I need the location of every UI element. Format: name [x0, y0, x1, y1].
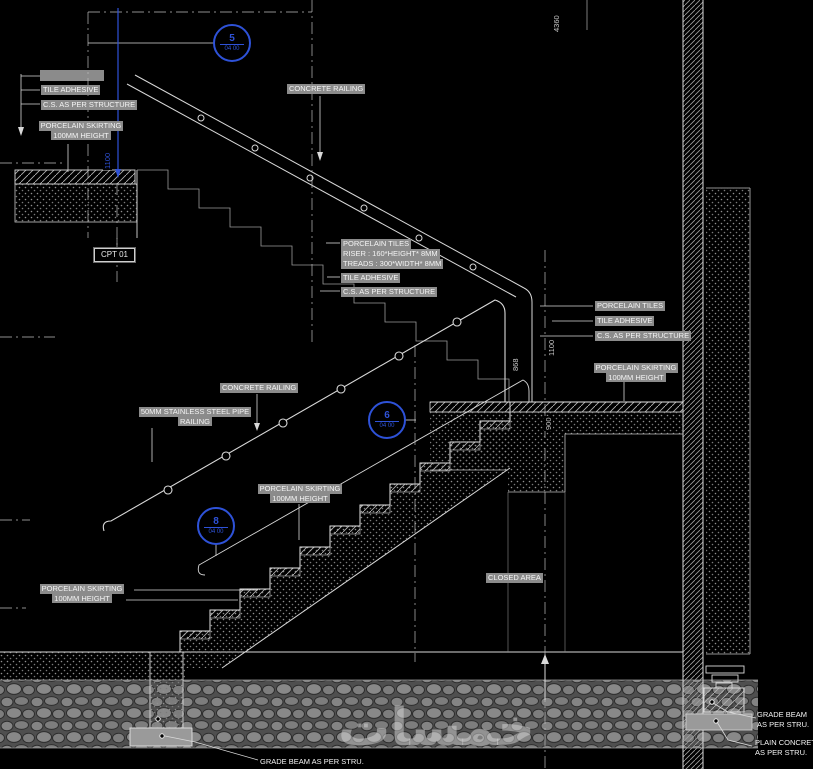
cad-stair-section-drawing: TILE ADHESIVE C.S. AS PER STRUCTURE PORC…	[0, 0, 813, 769]
label-porcelain-skirting-right: PORCELAIN SKIRTING100MM HEIGHT	[586, 363, 686, 382]
label-grade-beam-bottom: GRADE BEAM AS PER STRU.	[260, 757, 364, 767]
label-porcelain-tiles-right: PORCELAIN TILES	[595, 301, 665, 311]
upper-flight-outline	[137, 170, 509, 402]
label-porcelain-tiles-mid: PORCELAIN TILES	[341, 239, 411, 249]
label-pipe-railing: 50MM STAINLESS STEEL PIPERAILING	[120, 407, 270, 426]
label-concrete-railing-top: CONCRETE RAILING	[287, 84, 365, 94]
label-porcelain-skirting-bottomleft: PORCELAIN SKIRTING100MM HEIGHT	[30, 584, 134, 603]
grade-beam-right	[704, 688, 744, 712]
cpt-tag: CPT 01	[94, 248, 135, 262]
label-closed-area: CLOSED AREA	[486, 573, 543, 583]
dim-rail-height: 868	[511, 357, 520, 372]
mid-landing	[430, 402, 683, 652]
label-tile-adhesive-right: TILE ADHESIVE	[595, 316, 654, 326]
plain-concrete-strip	[686, 714, 752, 730]
label-porcelain-skirting-topleft: PORCELAIN SKIRTING100MM HEIGHT	[30, 121, 132, 140]
label-tile-adhesive-mid: TILE ADHESIVE	[341, 273, 400, 283]
dim-landing-depth: 900	[544, 416, 553, 431]
label-concrete-railing-mid: CONCRETE RAILING	[220, 383, 298, 393]
label-plain-concrete: PLAIN CONCRETEAS PER STRU.	[755, 738, 813, 757]
detail-callout-8: 8 04 00	[197, 507, 235, 545]
label-grade-beam-right: GRADE BEAMAS PER STRU.	[757, 710, 809, 729]
right-wall-section	[683, 0, 750, 769]
upper-landing	[15, 70, 137, 238]
detail-callout-6: 6 04 00	[368, 401, 406, 439]
detail-callout-5: 5 04 00	[213, 24, 251, 62]
label-cs-structure-right: C.S. AS PER STRUCTURE	[595, 331, 691, 341]
label-riser-spec: RISER : 160*HEIGHT* 8MM	[341, 249, 440, 259]
label-cs-structure-mid: C.S. AS PER STRUCTURE	[341, 287, 437, 297]
label-treads-spec: TREADS : 300*WIDTH* 8MM	[341, 259, 443, 269]
blue-dimension	[115, 8, 121, 178]
dim-overall-height: 4360	[552, 14, 561, 33]
label-porcelain-skirting-mid: PORCELAIN SKIRTING100MM HEIGHT	[240, 484, 360, 503]
dim-mid-height: 1100	[547, 339, 556, 357]
wall-render-layer	[706, 188, 750, 654]
watermark-text: خمسات	[338, 698, 535, 758]
drawing-linework	[0, 0, 813, 769]
label-tile-adhesive-topleft: TILE ADHESIVE	[41, 85, 100, 95]
label-cs-structure-topleft: C.S. AS PER STRUCTURE	[41, 100, 137, 110]
concrete-railing-upper	[127, 75, 532, 402]
finish-swatch	[40, 70, 104, 81]
dim-left-rail-height: 1100	[103, 152, 112, 170]
